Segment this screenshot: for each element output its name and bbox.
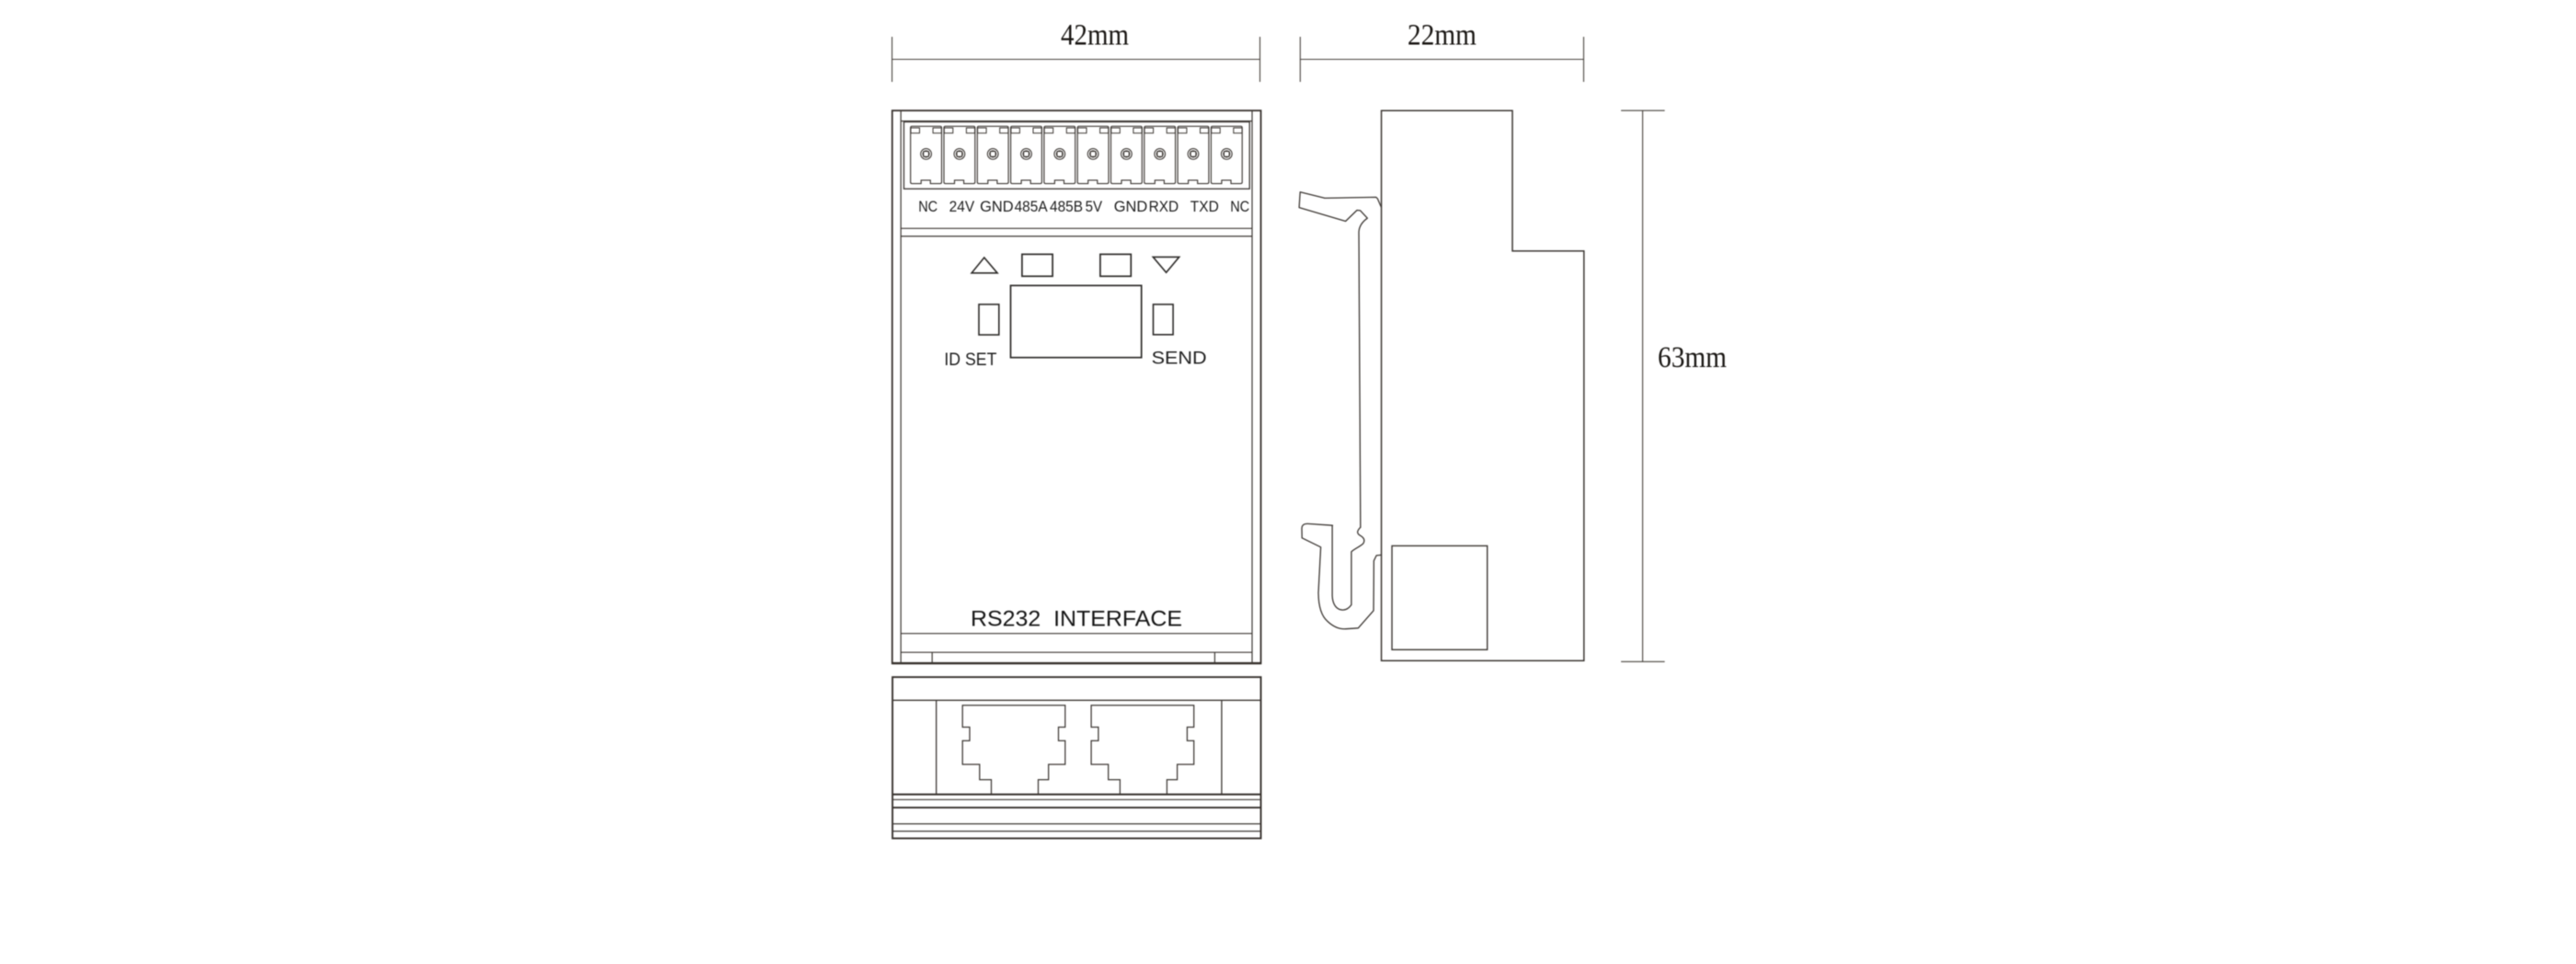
- svg-text:NC: NC: [918, 198, 937, 215]
- svg-text:485A: 485A: [1015, 198, 1049, 215]
- svg-text:GND: GND: [1114, 198, 1148, 215]
- svg-text:GND: GND: [980, 198, 1014, 215]
- svg-text:SEND: SEND: [1152, 349, 1207, 369]
- svg-text:RS232 INTERFACE: RS232 INTERFACE: [971, 607, 1182, 632]
- svg-text:24V: 24V: [949, 198, 975, 215]
- svg-text:NC: NC: [1230, 198, 1249, 215]
- svg-text:5V: 5V: [1086, 198, 1103, 215]
- svg-text:ID SET: ID SET: [944, 350, 996, 370]
- svg-text:63mm: 63mm: [1658, 341, 1727, 374]
- svg-text:TXD: TXD: [1190, 198, 1219, 215]
- svg-text:42mm: 42mm: [1061, 19, 1129, 52]
- svg-text:22mm: 22mm: [1408, 19, 1477, 52]
- svg-text:RXD: RXD: [1149, 198, 1179, 215]
- svg-text:485B: 485B: [1050, 198, 1083, 215]
